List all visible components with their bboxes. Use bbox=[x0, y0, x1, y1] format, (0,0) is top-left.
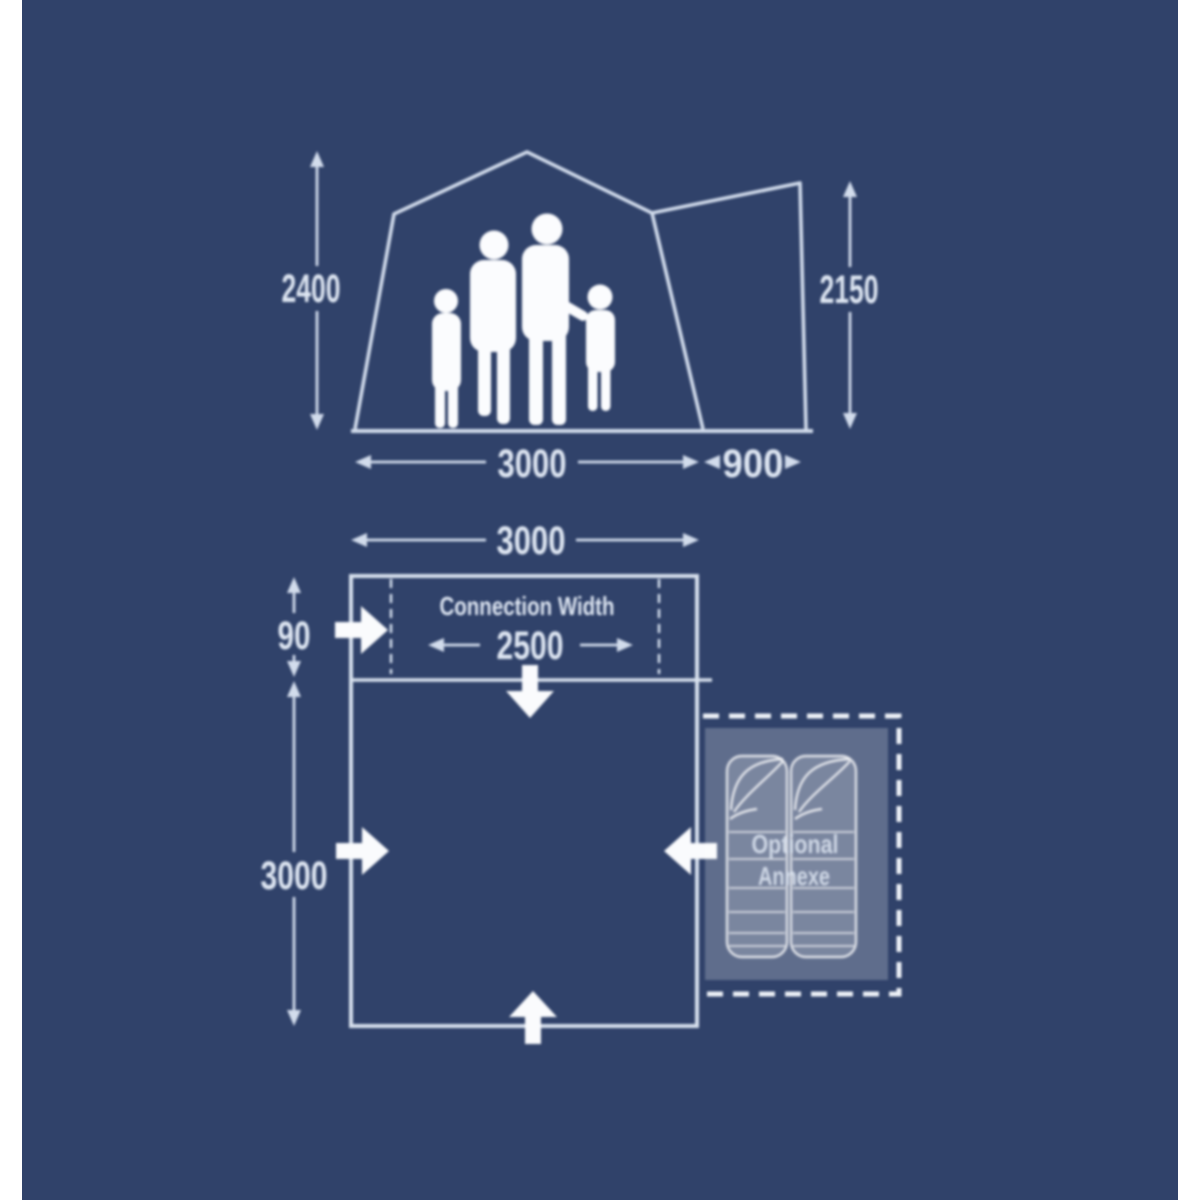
svg-text:2500: 2500 bbox=[497, 624, 564, 668]
svg-text:Connection Width: Connection Width bbox=[440, 591, 615, 621]
svg-text:3000: 3000 bbox=[498, 442, 567, 486]
svg-text:Annexe: Annexe bbox=[758, 861, 830, 891]
svg-text:90: 90 bbox=[278, 614, 311, 658]
svg-text:2400: 2400 bbox=[282, 267, 341, 311]
svg-text:3000: 3000 bbox=[497, 519, 566, 563]
svg-text:3000: 3000 bbox=[261, 854, 328, 898]
svg-text:900: 900 bbox=[723, 442, 784, 486]
svg-text:Optional: Optional bbox=[752, 829, 839, 859]
svg-text:2150: 2150 bbox=[820, 268, 879, 312]
